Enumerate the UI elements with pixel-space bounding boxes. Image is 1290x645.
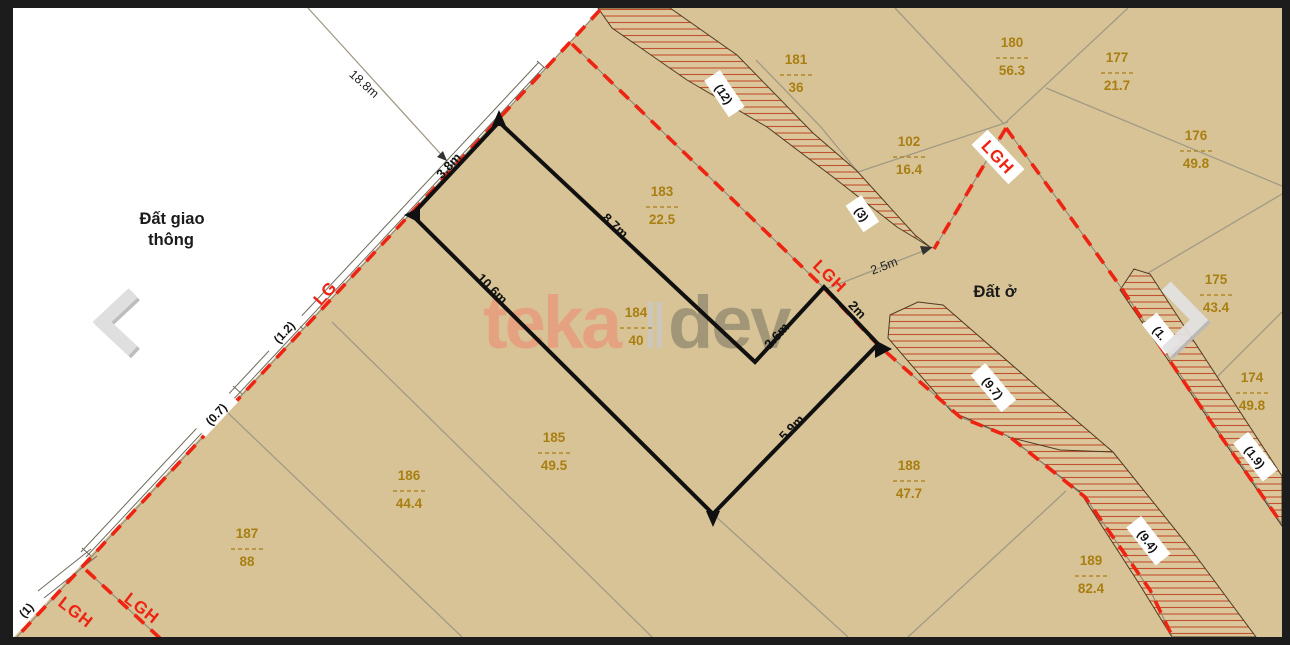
parcel-area: 47.7 (896, 486, 922, 501)
traffic-zone-label-line2: thông (148, 231, 194, 249)
watermark-right: dev (668, 281, 791, 364)
parcel-number: 185 (543, 430, 566, 445)
parcel-number: 174 (1241, 370, 1264, 385)
traffic-zone-label: Đất giao (139, 210, 204, 228)
parcel-number: 177 (1106, 50, 1129, 65)
map-canvas[interactable]: teka dev 181 36 102 16.4 (0, 0, 1290, 645)
parcel-area: 49.8 (1239, 398, 1266, 413)
parcel-number: 188 (898, 458, 921, 473)
parcel-number: 186 (398, 468, 421, 483)
parcel-area: 82.4 (1078, 581, 1105, 596)
residential-zone-label: Đất ở (974, 283, 1017, 301)
parcel-area: 40 (628, 333, 643, 348)
parcel-area: 44.4 (396, 496, 423, 511)
watermark-bar (648, 302, 653, 348)
parcel-area: 56.3 (999, 63, 1026, 78)
parcel-area: 49.8 (1183, 156, 1210, 171)
parcel-number: 102 (898, 134, 921, 149)
map-viewer: teka dev 181 36 102 16.4 (0, 0, 1290, 645)
parcel-number: 187 (236, 526, 259, 541)
parcel-number: 189 (1080, 553, 1103, 568)
parcel-area: 21.7 (1104, 78, 1130, 93)
parcel-area: 22.5 (649, 212, 676, 227)
parcel-area: 49.5 (541, 458, 568, 473)
parcel-number: 184 (625, 305, 648, 320)
parcel-area: 43.4 (1203, 300, 1230, 315)
parcel-number: 181 (785, 52, 808, 67)
parcel-number: 176 (1185, 128, 1208, 143)
watermark-bar (657, 302, 662, 348)
parcel-number: 175 (1205, 272, 1228, 287)
parcel-area: 16.4 (896, 162, 923, 177)
parcel-number: 183 (651, 184, 674, 199)
parcel-area: 88 (239, 554, 255, 569)
parcel-number: 180 (1001, 35, 1024, 50)
parcel-area: 36 (788, 80, 804, 95)
